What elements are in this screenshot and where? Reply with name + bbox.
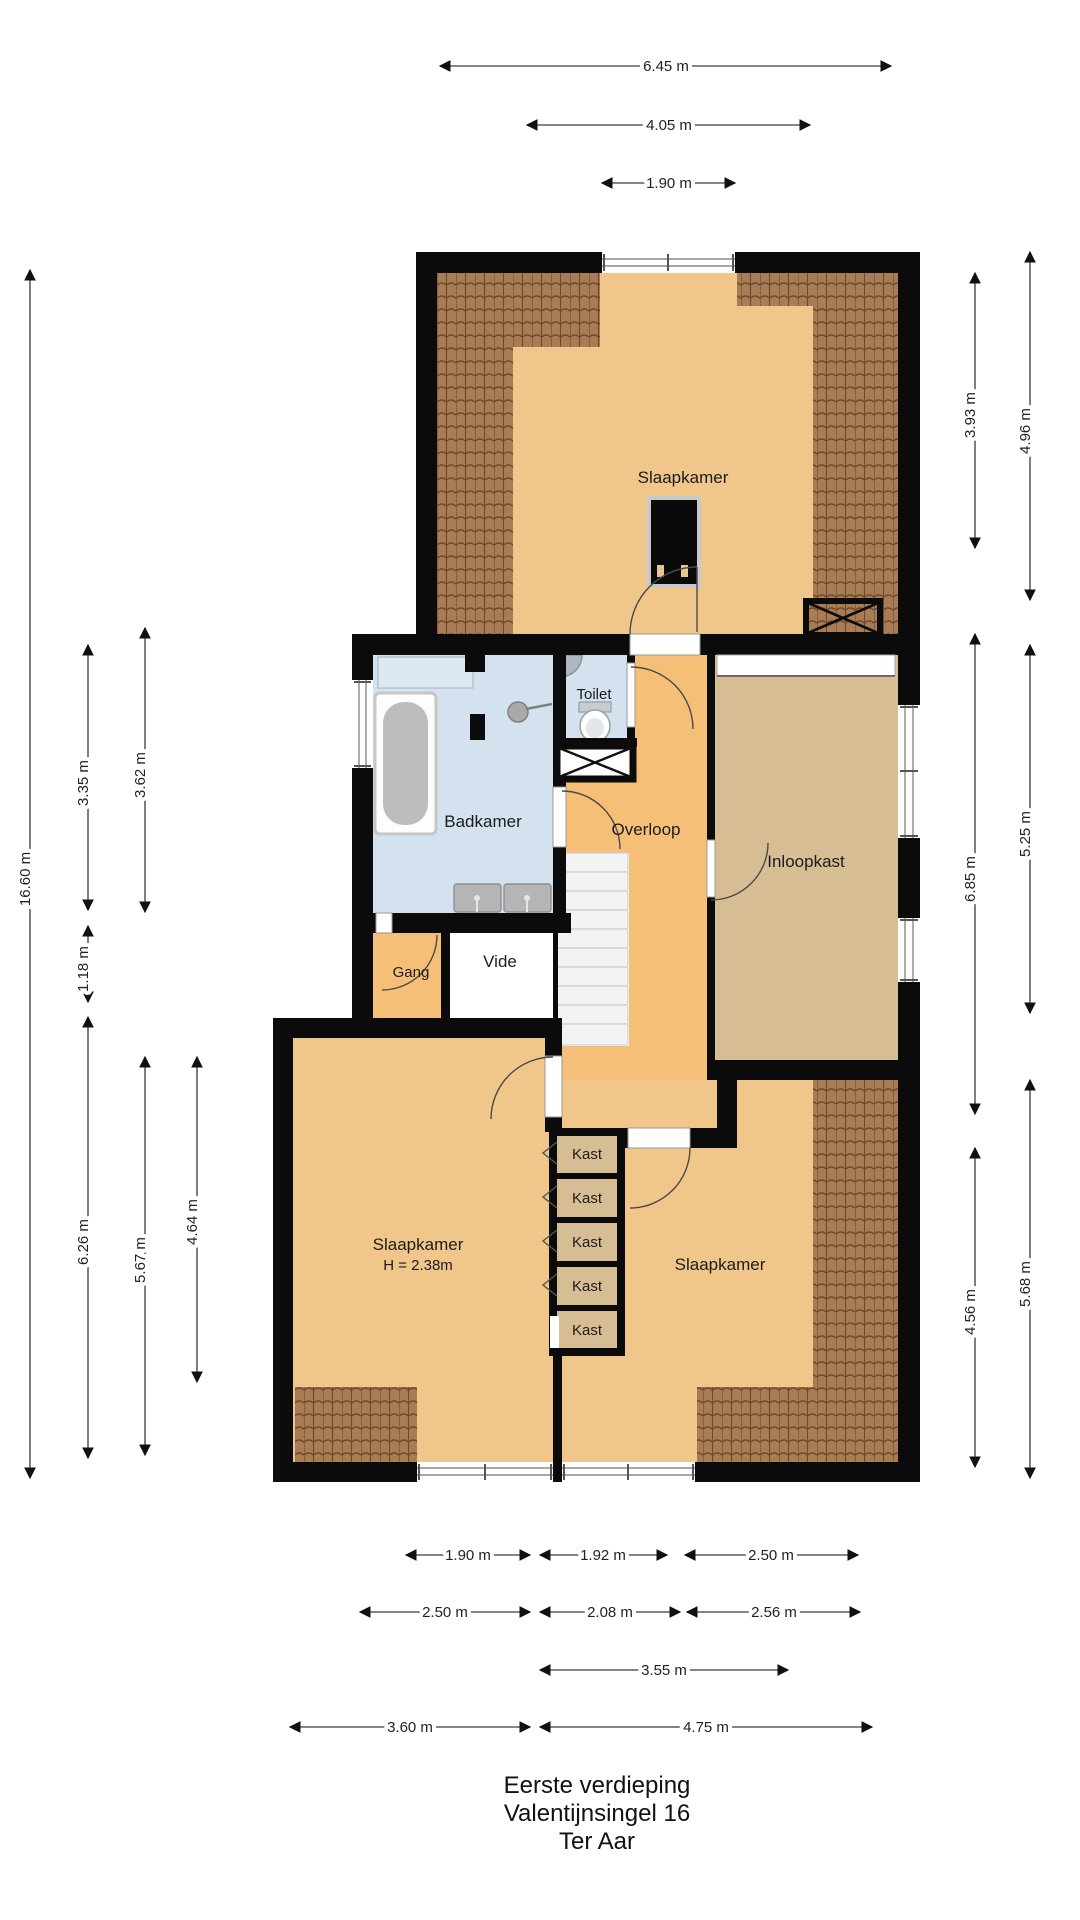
label-slaapkamer-right: Slaapkamer [675, 1255, 766, 1274]
label-badkamer: Badkamer [444, 812, 522, 831]
label-slaapkamer-left: Slaapkamer [373, 1235, 464, 1254]
dimensions-bottom: 1.90 m 1.92 m 2.50 m 2.50 m 2.08 m 2.56 … [290, 1547, 872, 1736]
inloopkast-closet-strip [717, 655, 895, 676]
dim-bottom-256: 2.56 m [751, 1604, 797, 1621]
label-slaapkamer-top: Slaapkamer [638, 468, 729, 487]
roof-tiles-top-left [437, 273, 513, 634]
bathroom-shelf [378, 657, 473, 688]
window-inloopkast-right-2 [898, 918, 920, 982]
dim-top-190: 1.90 m [646, 175, 692, 192]
staircase [556, 853, 629, 1046]
roof-tiles-bottom-left [295, 1387, 417, 1462]
kast-opening [550, 1316, 559, 1348]
dim-bottom-250a: 2.50 m [748, 1547, 794, 1564]
chimney [647, 496, 701, 588]
dim-right-496: 4.96 m [1017, 408, 1034, 454]
dim-left-118: 1.18 m [75, 946, 92, 992]
dim-right-393: 3.93 m [962, 392, 979, 438]
title-block: Eerste verdieping Valentijnsingel 16 Ter… [504, 1772, 691, 1855]
dim-left-335: 3.35 m [75, 760, 92, 806]
roof-tiles-top-left-notch [513, 273, 600, 347]
duct-shaft [557, 746, 633, 779]
dimensions-left: 16.60 m 3.35 m 3.62 m 1.18 m 6.26 m 5.67… [17, 270, 201, 1478]
dim-left-567: 5.67 m [132, 1237, 149, 1283]
dim-right-568: 5.68 m [1017, 1261, 1034, 1307]
window-badkamer-left [352, 680, 373, 768]
floorplan-page: Slaapkamer Toilet Badkamer Overloop Inlo… [0, 0, 1080, 1920]
dim-right-525: 5.25 m [1017, 811, 1034, 857]
bathtub [375, 693, 436, 834]
window-inloopkast-right-1 [898, 705, 920, 838]
dim-bottom-355: 3.55 m [641, 1662, 687, 1679]
dim-bottom-192: 1.92 m [580, 1547, 626, 1564]
room-vide-floor [450, 933, 553, 1018]
label-kast-2: Kast [572, 1190, 603, 1207]
dim-top-405: 4.05 m [646, 117, 692, 134]
title-floor: Eerste verdieping [504, 1772, 691, 1799]
roof-tiles-top-right-notch [737, 273, 813, 306]
label-vide: Vide [483, 952, 517, 971]
dim-left-626: 6.26 m [75, 1219, 92, 1265]
window-top [602, 252, 735, 273]
label-toilet: Toilet [576, 686, 612, 703]
window-bottom-right [562, 1462, 695, 1482]
dimensions-right: 4.96 m 3.93 m 5.25 m 6.85 m 5.68 m 4.56 … [962, 252, 1034, 1478]
dim-left-1660: 16.60 m [17, 852, 34, 906]
dim-left-362: 3.62 m [132, 752, 149, 798]
dim-bottom-250b: 2.50 m [422, 1604, 468, 1621]
dim-top-645: 6.45 m [643, 58, 689, 75]
label-kast-1: Kast [572, 1146, 603, 1163]
dim-bottom-208: 2.08 m [587, 1604, 633, 1621]
roof-shaft-box [806, 601, 880, 635]
label-overloop: Overloop [612, 820, 681, 839]
dim-bottom-190: 1.90 m [445, 1547, 491, 1564]
dim-right-456: 4.56 m [962, 1289, 979, 1335]
title-city: Ter Aar [559, 1828, 635, 1855]
roof-tiles-top-right [813, 273, 899, 634]
floor-plan-canvas: Slaapkamer Toilet Badkamer Overloop Inlo… [0, 0, 1080, 1920]
label-inloopkast: Inloopkast [767, 852, 845, 871]
roof-tiles-bottom-right [697, 1387, 855, 1462]
label-gang: Gang [393, 964, 430, 981]
dimensions-top: 6.45 m 4.05 m 1.90 m [440, 58, 891, 192]
label-slaapkamer-left-height: H = 2.38m [383, 1257, 453, 1274]
window-bottom-left [417, 1462, 553, 1482]
dim-left-464: 4.64 m [184, 1199, 201, 1245]
label-kast-4: Kast [572, 1278, 603, 1295]
dim-bottom-475: 4.75 m [683, 1719, 729, 1736]
dim-bottom-360: 3.60 m [387, 1719, 433, 1736]
toilet-fixture [579, 702, 611, 742]
title-address: Valentijnsingel 16 [504, 1800, 690, 1827]
label-kast-5: Kast [572, 1322, 603, 1339]
dim-right-685: 6.85 m [962, 856, 979, 902]
label-kast-3: Kast [572, 1234, 603, 1251]
